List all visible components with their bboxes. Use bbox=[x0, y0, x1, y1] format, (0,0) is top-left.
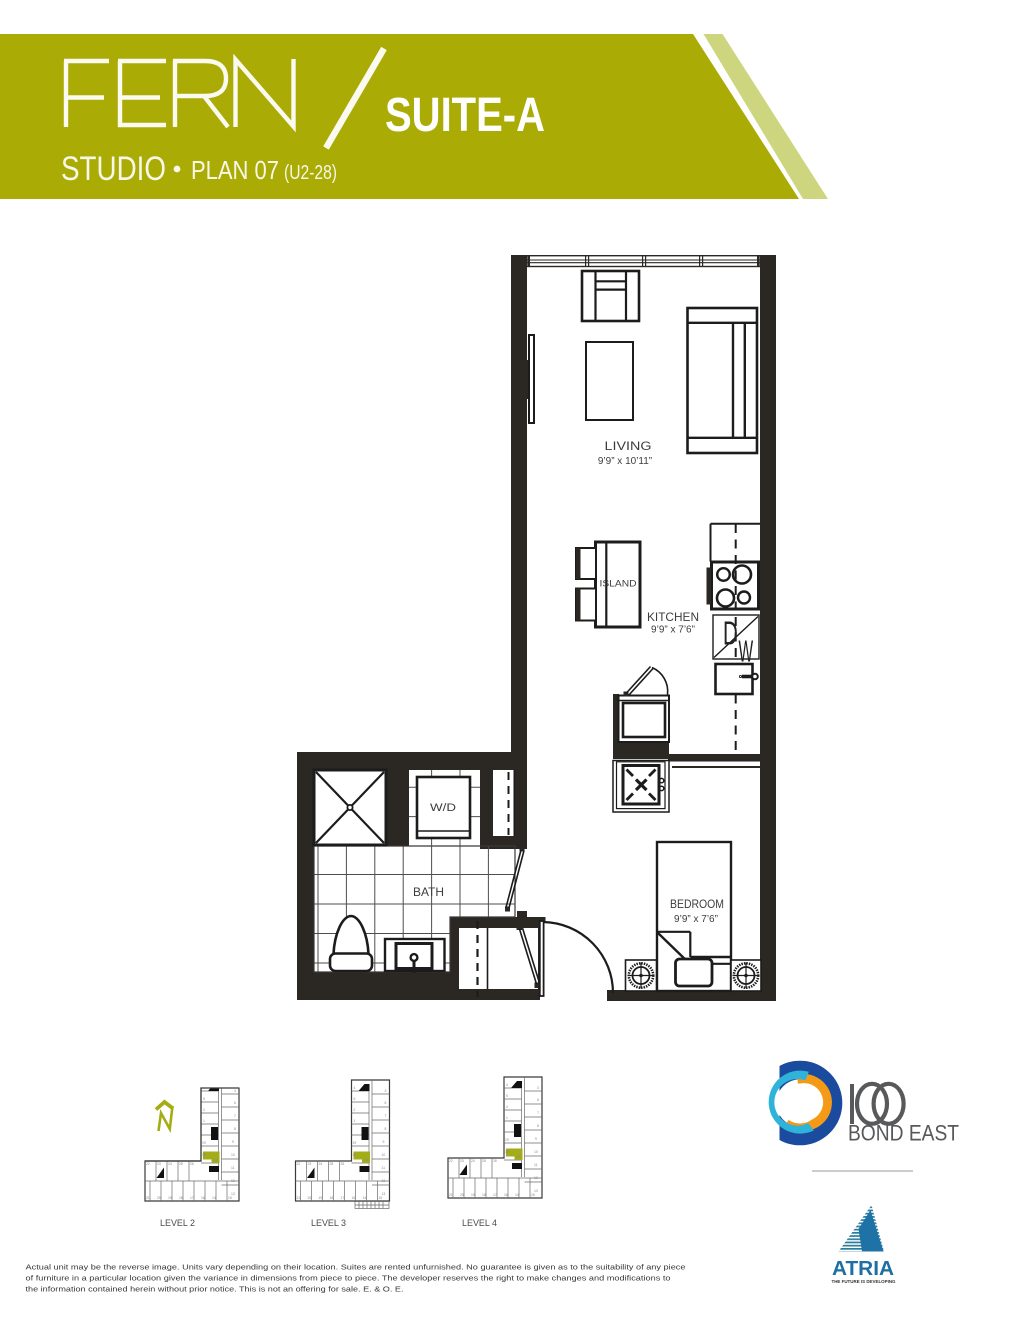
svg-text:SUITE-A: SUITE-A bbox=[385, 89, 545, 142]
svg-text:13: 13 bbox=[231, 1192, 235, 1196]
svg-text:18: 18 bbox=[179, 1196, 183, 1200]
svg-text:BOND EAST: BOND EAST bbox=[848, 1121, 959, 1146]
svg-text:20: 20 bbox=[214, 1158, 218, 1162]
svg-text:STUDIO: STUDIO bbox=[61, 150, 166, 188]
svg-text:D: D bbox=[723, 614, 738, 651]
svg-text:7: 7 bbox=[234, 1114, 236, 1118]
svg-text:LIVING: LIVING bbox=[605, 439, 652, 453]
svg-text:9’9” x 7’6”: 9’9” x 7’6” bbox=[674, 914, 718, 925]
svg-text:Actual unit may be the reverse: Actual unit may be the reverse image. Un… bbox=[26, 1263, 686, 1272]
svg-text:ATRIA: ATRIA bbox=[832, 1258, 894, 1280]
svg-text:26: 26 bbox=[190, 1162, 194, 1166]
svg-text:23: 23 bbox=[157, 1162, 161, 1166]
svg-text:KITCHEN: KITCHEN bbox=[647, 610, 699, 624]
svg-text:LEVEL 3: LEVEL 3 bbox=[311, 1218, 346, 1229]
svg-text:10: 10 bbox=[231, 1153, 235, 1157]
svg-text:THE FUTURE IS DEVELOPING: THE FUTURE IS DEVELOPING bbox=[832, 1279, 896, 1285]
svg-text:BEDROOM: BEDROOM bbox=[670, 899, 724, 911]
svg-text:14: 14 bbox=[212, 1196, 216, 1200]
svg-text:16: 16 bbox=[201, 1196, 205, 1200]
svg-text:22: 22 bbox=[146, 1162, 150, 1166]
svg-text:PLAN 07: PLAN 07 bbox=[191, 155, 279, 185]
svg-text:18: 18 bbox=[202, 1153, 206, 1157]
svg-text:W/D: W/D bbox=[430, 802, 456, 814]
svg-text:17: 17 bbox=[190, 1196, 194, 1200]
svg-text:21: 21 bbox=[146, 1196, 150, 1200]
svg-text:8: 8 bbox=[234, 1127, 236, 1131]
svg-text:LEVEL 4: LEVEL 4 bbox=[462, 1218, 497, 1229]
svg-text:9’9” x 7’6”: 9’9” x 7’6” bbox=[651, 625, 695, 636]
svg-text:15: 15 bbox=[228, 1196, 232, 1200]
svg-text:3: 3 bbox=[234, 1089, 236, 1093]
svg-text:9’9” x 10’11”: 9’9” x 10’11” bbox=[598, 456, 652, 467]
svg-text:LEVEL 2: LEVEL 2 bbox=[160, 1218, 195, 1229]
svg-text:2: 2 bbox=[203, 1108, 205, 1112]
svg-text:12: 12 bbox=[231, 1179, 235, 1183]
svg-text:(U2-28): (U2-28) bbox=[284, 162, 337, 184]
svg-text:ISLAND: ISLAND bbox=[600, 579, 637, 590]
svg-text:5: 5 bbox=[203, 1097, 205, 1101]
svg-text:24: 24 bbox=[168, 1162, 172, 1166]
svg-text:of furniture in a particular l: of furniture in a particular location gi… bbox=[26, 1274, 671, 1283]
svg-text:9: 9 bbox=[232, 1140, 234, 1144]
svg-text:28: 28 bbox=[179, 1162, 183, 1166]
svg-text:11: 11 bbox=[231, 1166, 235, 1170]
svg-text:19: 19 bbox=[202, 1141, 206, 1145]
svg-text:1: 1 bbox=[203, 1119, 205, 1123]
svg-text:the information contained here: the information contained herein without… bbox=[26, 1285, 404, 1294]
svg-text:6: 6 bbox=[234, 1101, 236, 1105]
svg-text:BATH: BATH bbox=[413, 885, 444, 899]
svg-text:19: 19 bbox=[168, 1196, 172, 1200]
svg-text:25: 25 bbox=[157, 1196, 161, 1200]
